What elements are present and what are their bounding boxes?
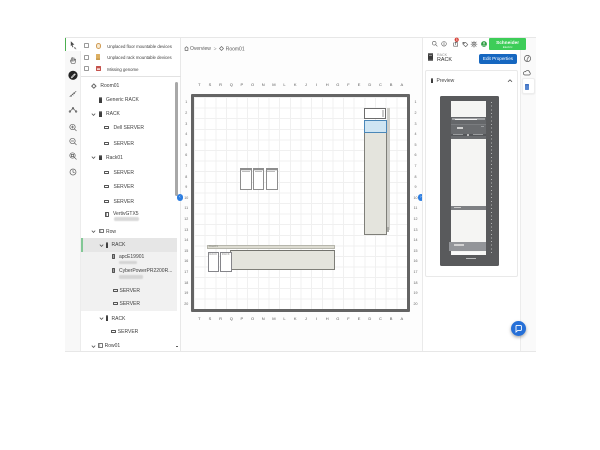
svg-text:5: 5 [456,38,458,42]
